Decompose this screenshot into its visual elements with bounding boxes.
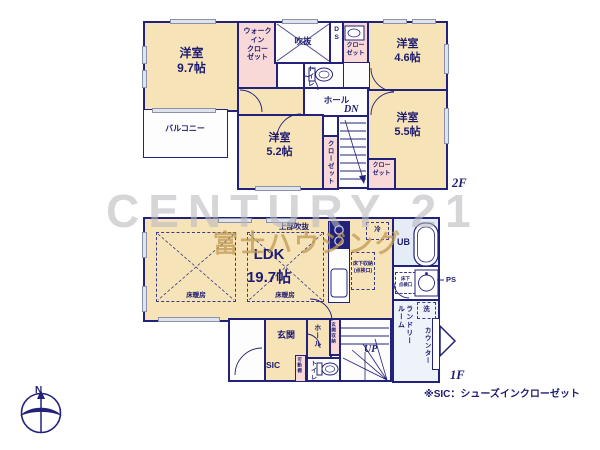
label-upper-void: 上部吹抜 (279, 222, 309, 231)
floorplan-canvas: 洋室 9.7帖 バルコニー ウォーク イン クロー ゼット 吹抜 DS クロー … (0, 0, 600, 450)
label-laundry: ランドリー ルーム (396, 305, 413, 345)
label-bedroom-4-6: 洋室 4.6帖 (367, 38, 448, 66)
label-hall-1f: ホール (312, 324, 321, 348)
bay-window (440, 326, 455, 356)
label-genkan: 玄関 (266, 330, 306, 341)
label-closet-5-2: クローゼット (325, 140, 333, 185)
window-marker (158, 317, 220, 322)
label-sic: SIC (266, 360, 280, 371)
window-marker (412, 19, 436, 24)
label-void: 吹抜 (274, 36, 332, 47)
footnote-sic: ※SIC：シューズインクローゼット (424, 389, 580, 402)
window-marker (142, 286, 147, 312)
label-walk-in-closet: ウォーク イン クロー ゼット (238, 28, 277, 63)
label-floor-heating-1: 床暖房 (157, 292, 235, 300)
label-fridge: 冷 (366, 226, 389, 234)
label-floor-2f: 2F (452, 176, 467, 192)
label-movable-shelf: 可動棚 (297, 357, 303, 374)
label-balcony: バルコニー (143, 124, 227, 134)
label-toilet-2f: トイレ (305, 65, 313, 88)
window-marker (152, 108, 216, 113)
window-marker (170, 19, 216, 24)
corridor-2f (237, 87, 305, 117)
label-underfloor-access: 床下 点検口 (396, 276, 415, 288)
room-porch (228, 318, 267, 382)
laundry-counter (432, 318, 440, 370)
label-duct-space: DS (332, 26, 340, 42)
window-marker (218, 218, 252, 223)
label-bedroom-5-5: 洋室 5.5帖 (367, 112, 448, 140)
label-bedroom-5-2: 洋室 5.2帖 (237, 132, 322, 160)
label-dn: DN (344, 104, 358, 117)
label-washer: 洗 (417, 306, 436, 314)
label-floor-heating-2: 床暖房 (248, 292, 322, 300)
compass-north-label: N (35, 385, 42, 398)
window-marker (383, 19, 407, 24)
label-counter: カウンター (422, 327, 430, 365)
label-ps: PS (446, 275, 456, 284)
label-ldk: LDK 19.7帖 (169, 244, 369, 289)
label-underfloor-storage: 床下収納 (点検口) (350, 261, 376, 275)
label-closet-a: クロー ゼット (341, 43, 370, 58)
label-up: UP (364, 344, 377, 357)
label-unit-bath: UB (397, 237, 410, 248)
stairs-2f (337, 115, 369, 189)
label-closet-5-5: クロー ゼット (368, 163, 395, 178)
window-marker (142, 232, 147, 258)
label-bedroom-9-7: 洋室 9.7帖 (143, 46, 240, 76)
label-hall-2f: ホール (303, 95, 370, 106)
label-floor-1f: 1F (450, 368, 465, 384)
label-genkan-storage: 玄関収納 (331, 322, 337, 344)
label-toilet-1f: トイレ (308, 360, 316, 381)
window-marker (282, 19, 318, 24)
window-marker (255, 186, 301, 191)
